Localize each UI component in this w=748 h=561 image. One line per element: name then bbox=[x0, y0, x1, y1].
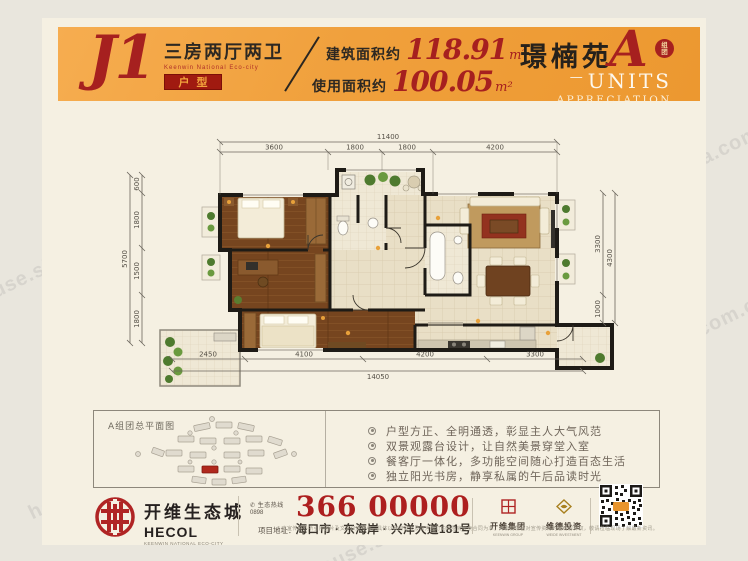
pillow bbox=[288, 316, 308, 324]
bullet-icon bbox=[368, 442, 376, 450]
brand-name-cn: 开维生态城 bbox=[144, 498, 244, 523]
bay-left-1 bbox=[202, 207, 220, 237]
unit-type-subtitle: Keenwin National Eco-city bbox=[164, 65, 284, 71]
patio-table bbox=[408, 176, 420, 188]
plant bbox=[378, 172, 388, 182]
dim-top-total: 11400 bbox=[377, 133, 399, 141]
feature-text: 双景观露台设计，让自然美景穿堂入室 bbox=[386, 438, 590, 454]
kitchen-counter bbox=[418, 340, 536, 349]
dim-bottom-seg: 4100 bbox=[295, 351, 313, 359]
dim-bottom-seg: 3300 bbox=[526, 351, 544, 359]
usable-area-value: 100.05 bbox=[392, 65, 493, 98]
hotline-block: ✆ 生态热线 0898 bbox=[250, 500, 284, 516]
block-badge-top: 组 bbox=[661, 42, 668, 49]
sink bbox=[368, 218, 378, 228]
feature-item: 户型方正、全明通透，彰显主人大气风范 bbox=[368, 424, 659, 438]
dining-chair bbox=[514, 297, 526, 305]
site-plan-cell: A组团总平面图 bbox=[94, 411, 326, 487]
poster-page: house.sina.com.cn house.sina.com.cn hous… bbox=[0, 0, 748, 561]
washing-machine bbox=[342, 175, 355, 189]
dim-top-seg: 1800 bbox=[346, 144, 364, 152]
plant bbox=[208, 225, 215, 232]
unit-type-block: 三房两厅两卫 Keenwin National Eco-city 户型 bbox=[164, 38, 284, 90]
dim-bottom-seg: 2450 bbox=[199, 351, 217, 359]
floor-plan: 11400 3600 1800 1800 4200 2450 4100 4200… bbox=[118, 128, 648, 396]
units-subtitle-block: —UNITS APPRECIATION bbox=[557, 69, 672, 106]
site-plan: A组团总平面图 bbox=[94, 411, 326, 487]
dim-left-seg: 1500 bbox=[133, 262, 141, 280]
pillow bbox=[242, 200, 259, 208]
unit-type: 三房两厅两卫 bbox=[164, 38, 284, 64]
brand-logo-icon bbox=[94, 496, 136, 543]
hall-top bbox=[386, 195, 425, 250]
unit-tag: 户型 bbox=[164, 74, 222, 90]
info-box: A组团总平面图 bbox=[93, 410, 660, 488]
armchair bbox=[540, 208, 549, 234]
disclaimer-text: * 本宣传资料所引用图片及文字仅供参考，具体以政府批文及双方签订的商品房买卖合同… bbox=[262, 525, 658, 532]
toilet bbox=[453, 272, 463, 284]
patio-chair bbox=[403, 185, 409, 191]
feature-item: 独立阳光书房，静享私属的午后品读时光 bbox=[368, 469, 659, 483]
site-plan-highlight-unit bbox=[202, 466, 218, 473]
dim-top-seg: 3600 bbox=[265, 144, 283, 152]
plant bbox=[563, 273, 570, 280]
dim-right-seg: 3300 bbox=[594, 235, 602, 253]
tv bbox=[551, 210, 555, 248]
duvet bbox=[262, 326, 314, 346]
bullet-icon bbox=[368, 427, 376, 435]
dim-right-total: 4300 bbox=[606, 249, 614, 267]
features-list: 户型方正、全明通透，彰显主人大气风范 双景观露台设计，让自然美景穿堂入室 餐客厅… bbox=[326, 411, 659, 487]
dim-left-total: 5700 bbox=[121, 250, 129, 268]
dining-chair bbox=[490, 297, 502, 305]
feature-item: 餐客厅一体化，多功能空间随心打造百态生活 bbox=[368, 454, 659, 468]
chair bbox=[258, 277, 268, 287]
brand-block: 开维生态城 HECOL KEENWIN NATIONAL ECO-CITY bbox=[144, 498, 244, 546]
plant bbox=[163, 356, 173, 366]
dim-left-seg: 1800 bbox=[133, 211, 141, 229]
plant bbox=[365, 175, 376, 186]
floor-plan-area: 11400 3600 1800 1800 4200 2450 4100 4200… bbox=[118, 128, 648, 396]
armchair bbox=[460, 208, 469, 234]
dim-left-seg: 600 bbox=[133, 177, 141, 190]
tv-cabinet bbox=[328, 342, 366, 348]
header-band: J1 三房两厅两卫 Keenwin National Eco-city 户型 建… bbox=[58, 27, 700, 101]
units-label: UNITS bbox=[588, 69, 672, 93]
group1-sub: KEENWIN GROUP bbox=[482, 533, 534, 537]
plant bbox=[595, 353, 605, 363]
wardrobe bbox=[244, 313, 256, 349]
weide-investment-icon bbox=[556, 499, 572, 514]
entry-terrace bbox=[557, 325, 612, 368]
kaiwei-group-icon bbox=[501, 499, 516, 514]
qr-center-sticker bbox=[613, 502, 629, 511]
dim-left-seg: 1800 bbox=[133, 310, 141, 328]
bullet-icon bbox=[368, 457, 376, 465]
dining-chair bbox=[531, 275, 539, 287]
toilet bbox=[338, 221, 348, 235]
dining-chair bbox=[514, 257, 526, 265]
block-badge: 组 团 bbox=[655, 39, 674, 58]
usable-area-unit: m² bbox=[495, 80, 513, 95]
plant bbox=[165, 337, 175, 347]
plant bbox=[207, 212, 215, 220]
pillow bbox=[264, 316, 284, 324]
sink bbox=[454, 236, 462, 244]
plant bbox=[208, 270, 215, 277]
sofa bbox=[470, 197, 540, 206]
feature-text: 独立阳光书房，静享私属的午后品读时光 bbox=[386, 468, 602, 484]
unit-code: J1 bbox=[88, 23, 154, 93]
dim-bottom-total: 14050 bbox=[367, 373, 389, 381]
lamp bbox=[321, 316, 325, 320]
dim-right-seg: 1000 bbox=[594, 300, 602, 318]
plant bbox=[207, 258, 215, 266]
group2-sub: WEIDE INVESTMENT bbox=[538, 533, 590, 537]
feature-item: 双景观露台设计，让自然美景穿堂入室 bbox=[368, 439, 659, 453]
appreciation-label: APPRECIATION bbox=[557, 94, 672, 106]
plant bbox=[174, 348, 183, 357]
plant bbox=[563, 219, 570, 226]
hotline-phone: 366 00000 bbox=[296, 490, 471, 523]
bookshelf bbox=[315, 254, 326, 302]
kitchen-sink bbox=[490, 341, 505, 348]
pillow bbox=[263, 200, 280, 208]
plant bbox=[165, 375, 173, 383]
units-dash: — bbox=[570, 70, 586, 85]
bullet-icon bbox=[368, 472, 376, 480]
phone-icon: ✆ bbox=[250, 503, 256, 509]
stove bbox=[448, 341, 470, 348]
feature-text: 户型方正、全明通透，彰显主人大气风范 bbox=[386, 423, 602, 439]
lamp bbox=[227, 200, 231, 204]
monitor bbox=[246, 262, 258, 270]
dim-bottom-seg: 4200 bbox=[416, 351, 434, 359]
site-plan-title: A组团总平面图 bbox=[108, 420, 175, 432]
coffee-table bbox=[490, 220, 518, 233]
plant bbox=[562, 259, 570, 267]
built-area-label: 建筑面积约 bbox=[326, 44, 401, 64]
dim-top-seg: 4200 bbox=[486, 144, 504, 152]
dining-chair bbox=[477, 275, 485, 287]
feature-text: 餐客厅一体化，多功能空间随心打造百态生活 bbox=[386, 453, 626, 469]
bathtub bbox=[430, 232, 445, 280]
area-info: 建筑面积约 118.91 m² 使用面积约 100.05 m² bbox=[326, 33, 527, 97]
fridge bbox=[520, 327, 535, 340]
brand-subtitle: KEENWIN NATIONAL ECO-CITY bbox=[144, 541, 244, 546]
plant bbox=[390, 176, 401, 187]
hotline-label: 生态热线 bbox=[258, 503, 284, 509]
usable-area-label: 使用面积约 bbox=[312, 76, 387, 96]
dining-table bbox=[486, 266, 530, 296]
footer-divider bbox=[238, 496, 239, 536]
poster-card: J1 三房两厅两卫 Keenwin National Eco-city 户型 建… bbox=[42, 18, 706, 545]
plant bbox=[234, 296, 242, 304]
built-area-value: 118.91 bbox=[406, 33, 507, 66]
plant bbox=[562, 205, 570, 213]
dim-top-seg: 1800 bbox=[398, 144, 416, 152]
hotline-area-code: 0898 bbox=[250, 510, 284, 516]
brand-name-en: HECOL bbox=[144, 524, 244, 540]
dining-chair bbox=[490, 257, 502, 265]
laundry-counter bbox=[214, 333, 236, 341]
lamp bbox=[291, 200, 295, 204]
block-badge-bottom: 团 bbox=[661, 49, 668, 56]
